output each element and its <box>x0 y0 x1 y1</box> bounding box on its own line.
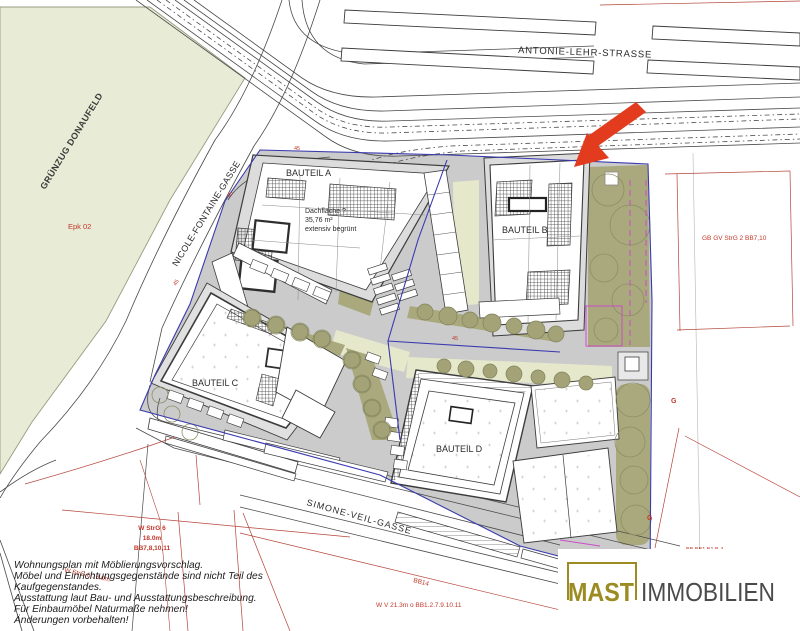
svg-text:BB7,8,10,11: BB7,8,10,11 <box>134 545 171 552</box>
svg-text:IMMOBILIEN: IMMOBILIEN <box>641 577 775 607</box>
svg-text:W StrG 6: W StrG 6 <box>138 525 166 532</box>
svg-text:GB GV StrG 2 BB7,10: GB GV StrG 2 BB7,10 <box>702 235 767 242</box>
svg-text:Ausstattung laut Bau- und Auss: Ausstattung laut Bau- und Ausstattungsbe… <box>13 593 257 604</box>
svg-text:Möbel und Einrichtungsgegenstä: Möbel und Einrichtungsgegenstände sind n… <box>14 571 263 582</box>
svg-text:G: G <box>671 398 677 405</box>
svg-text:Änderungen vorbehalten!: Änderungen vorbehalten! <box>13 614 129 626</box>
svg-text:Epk 02: Epk 02 <box>68 222 91 231</box>
svg-text:MAST: MAST <box>568 577 634 607</box>
svg-text:45: 45 <box>452 336 458 342</box>
svg-text:BAUTEIL A: BAUTEIL A <box>286 168 331 178</box>
svg-text:BAUTEIL B: BAUTEIL B <box>502 225 548 235</box>
svg-text:Kaufgegenstandes.: Kaufgegenstandes. <box>14 582 102 593</box>
svg-text:18.0m: 18.0m <box>143 535 162 542</box>
svg-text:45: 45 <box>294 146 300 152</box>
svg-text:BAUTEIL C: BAUTEIL C <box>192 378 239 388</box>
svg-text:G: G <box>647 515 653 522</box>
svg-text:Für Einbaumöbel Naturmaße nehm: Für Einbaumöbel Naturmaße nehmen! <box>14 604 188 615</box>
svg-text:BAUTEIL D: BAUTEIL D <box>436 444 483 454</box>
svg-text:W V 21.3m o BB1.2.7.9.10.11: W V 21.3m o BB1.2.7.9.10.11 <box>376 602 462 609</box>
svg-text:35,76 m²: 35,76 m² <box>305 217 333 224</box>
svg-text:Dachfläche ?: Dachfläche ? <box>305 208 346 215</box>
svg-text:extensiv begrünt: extensiv begrünt <box>305 226 356 233</box>
svg-text:Wohnungsplan mit Möblierungsvo: Wohnungsplan mit Möblierungsvorschlag. <box>14 560 203 571</box>
